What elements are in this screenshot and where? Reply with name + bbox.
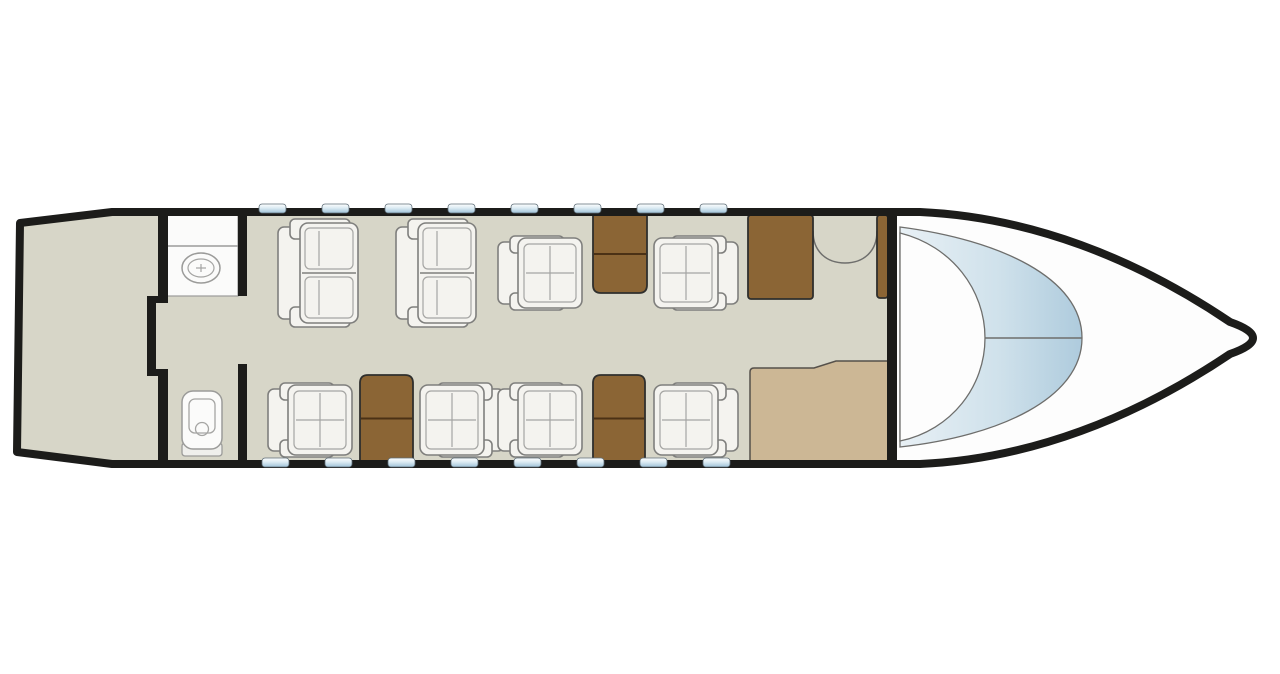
cabin-window-bottom: [388, 458, 415, 467]
side-table-bottom-1: [360, 375, 413, 462]
cabin-window-bottom: [262, 458, 289, 467]
floor-plan-canvas: [0, 0, 1280, 674]
cockpit-bulkhead-wall: [887, 212, 897, 464]
cabin-window-bottom: [640, 458, 667, 467]
wardrobe-cabinet: [877, 215, 888, 298]
side-table-top: [593, 215, 647, 293]
toilet-lid: [182, 391, 222, 449]
aft-bulkhead-wall: [147, 296, 156, 376]
club-chair-1: [268, 383, 352, 457]
cabin-window-top: [700, 204, 727, 213]
galley-cabinet: [748, 215, 813, 299]
cabin-window-bottom: [451, 458, 478, 467]
side-table-bottom-2: [593, 375, 645, 462]
cabin-window-bottom: [703, 458, 730, 467]
cabin-window-bottom: [577, 458, 604, 467]
lavatory-sink: [182, 253, 220, 283]
club-chair-5: [498, 383, 582, 457]
aircraft-floor-plan: [0, 0, 1280, 674]
cabin-window-top: [511, 204, 538, 213]
fuselage-interior: [0, 0, 1280, 674]
club-chair-4: [654, 236, 738, 310]
aft-bulkhead-wall: [147, 296, 168, 303]
aft-bulkhead-wall: [158, 212, 168, 298]
cabin-window-top: [637, 204, 664, 213]
aft-bulkhead-wall: [158, 373, 168, 464]
club-chair-3: [498, 236, 582, 310]
lavatory-toilet: [182, 391, 222, 456]
club-chair-2: [420, 383, 504, 457]
club-chair-6: [654, 383, 738, 457]
cabin-window-top: [574, 204, 601, 213]
cabin-window-top: [448, 204, 475, 213]
cabin-window-bottom: [325, 458, 352, 467]
lavatory-forward-wall: [238, 212, 247, 296]
cabin-window-bottom: [514, 458, 541, 467]
sofa-aft-1: [278, 219, 358, 327]
galley-counter: [750, 361, 888, 464]
cabin-window-top: [259, 204, 286, 213]
cabin-window-top: [385, 204, 412, 213]
sofa-aft-2: [396, 219, 476, 327]
lavatory-forward-wall: [238, 364, 247, 464]
cabin-window-top: [322, 204, 349, 213]
